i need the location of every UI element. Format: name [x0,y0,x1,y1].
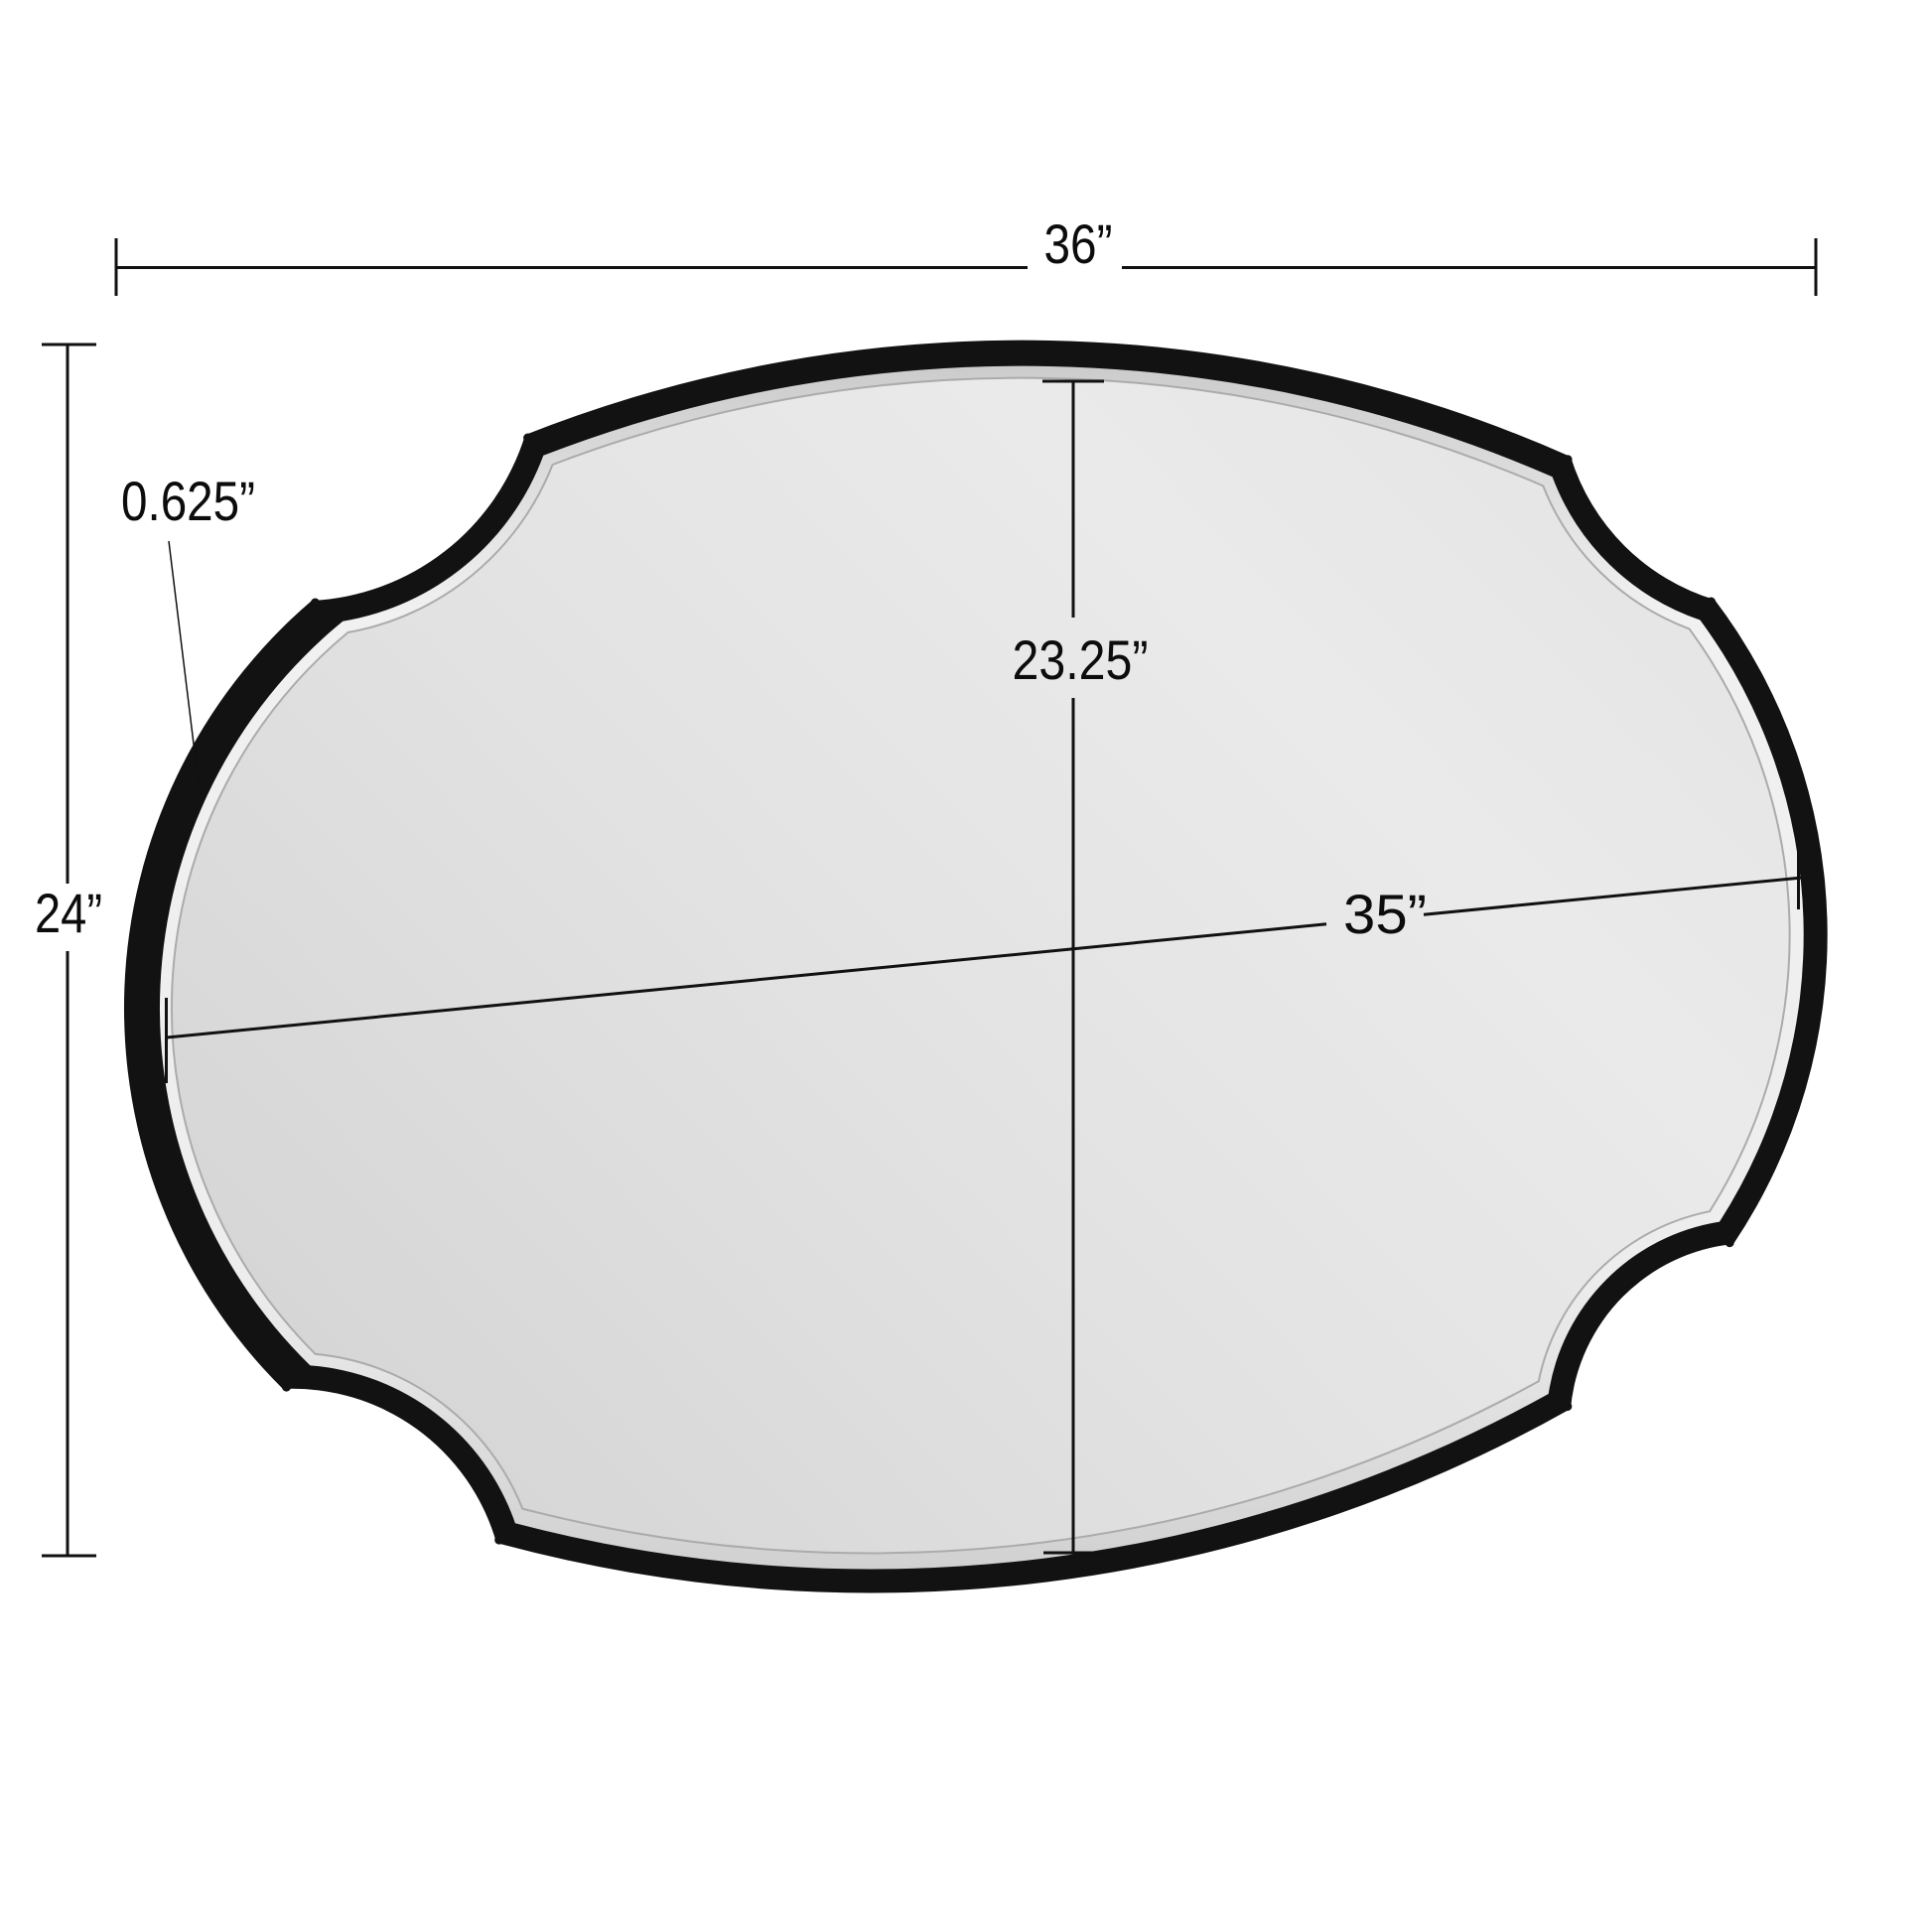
svg-text:36”: 36” [1044,212,1113,275]
svg-text:0.625”: 0.625” [121,470,255,532]
svg-text:35”: 35” [1343,883,1427,945]
svg-text:23.25”: 23.25” [1013,628,1149,691]
svg-text:24”: 24” [35,882,102,944]
